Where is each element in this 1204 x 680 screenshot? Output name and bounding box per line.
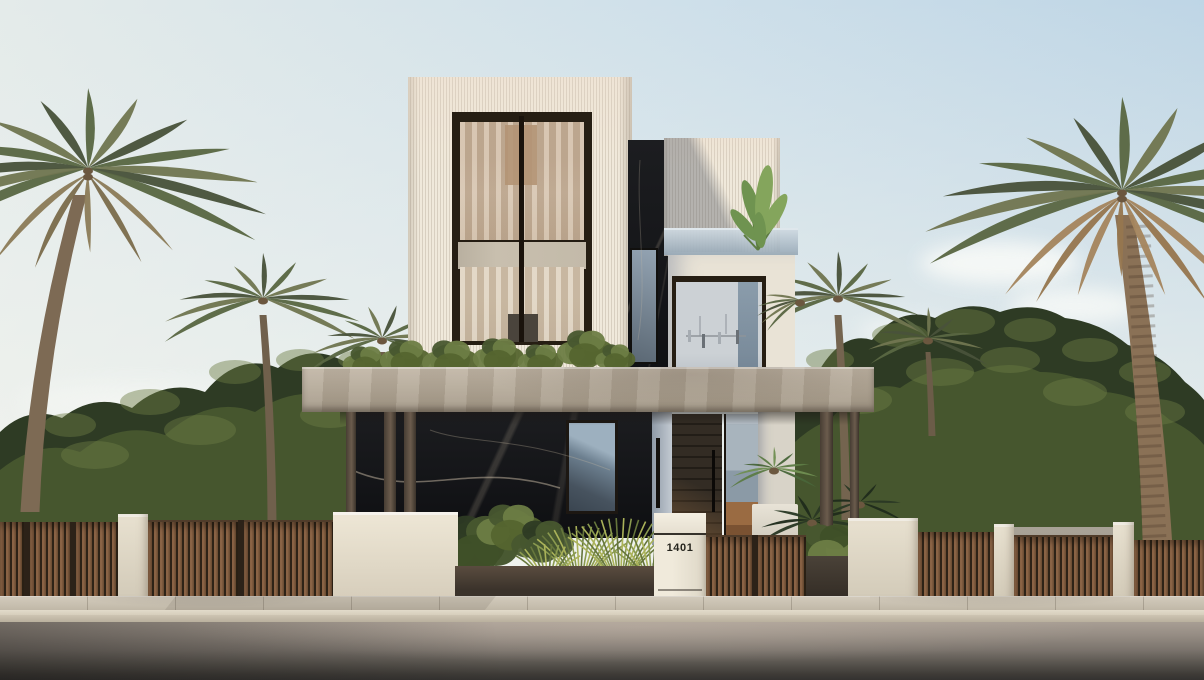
pillar-trim-line xyxy=(658,589,702,591)
fence-pier-large xyxy=(848,518,918,600)
fence-slat-panel xyxy=(1134,540,1204,600)
fence-pier xyxy=(994,524,1014,600)
fence-slat-panel xyxy=(76,522,118,600)
address-pillar: 1401 xyxy=(654,513,706,600)
asphalt-road xyxy=(0,622,1204,680)
house-number: 1401 xyxy=(654,542,706,554)
curb-face xyxy=(0,615,1204,622)
pedestrian-gate xyxy=(758,535,806,602)
fence-pier xyxy=(1113,522,1134,600)
address-pillar-cap xyxy=(654,513,706,535)
villa-exterior-render: 1401 xyxy=(0,0,1204,680)
planting-bed-wall xyxy=(455,566,665,600)
driveway-gate-right xyxy=(1014,535,1113,602)
street-planter xyxy=(806,556,848,600)
fence-slat-panel xyxy=(918,532,994,600)
driveway-gate-left xyxy=(244,520,333,602)
fence-pier xyxy=(118,514,148,600)
fence-slat-panel xyxy=(0,522,24,600)
pedestrian-gate xyxy=(706,535,752,602)
street-fence: 1401 xyxy=(0,0,1204,680)
fence-slat-panel xyxy=(30,522,70,600)
driveway-gate-left xyxy=(148,520,238,602)
forecourt-white-wall xyxy=(333,512,458,600)
